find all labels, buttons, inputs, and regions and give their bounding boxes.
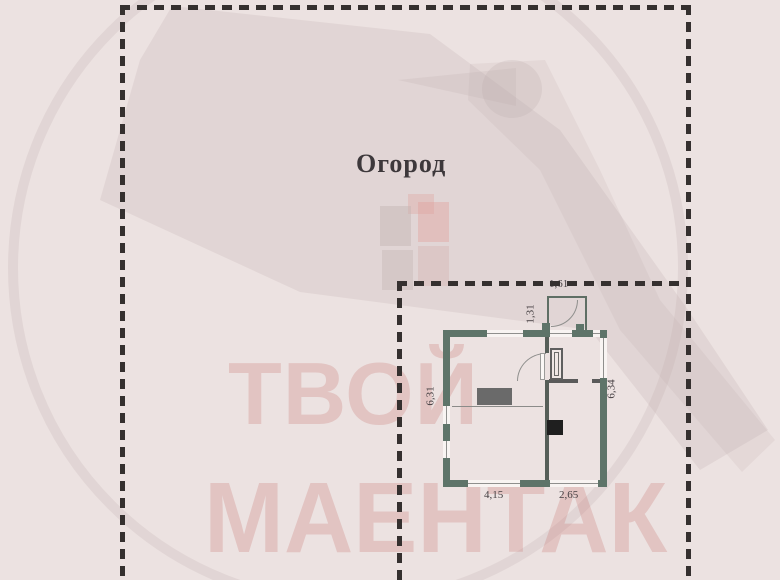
interior-door-leaf — [540, 353, 545, 380]
wall-segment — [443, 424, 450, 441]
wall-segment — [520, 480, 550, 487]
dim-left-side: 6,31 — [425, 386, 437, 405]
stove-black-box — [547, 420, 563, 435]
room-partition-line — [452, 406, 543, 407]
wall-segment — [598, 480, 607, 487]
inner-boundary-top — [397, 281, 686, 286]
interior-wall — [545, 337, 549, 353]
partition-wall — [592, 379, 600, 383]
inner-boundary-left — [397, 281, 402, 580]
wall-segment — [443, 480, 468, 487]
outer-boundary-right — [686, 5, 691, 580]
window-pane — [380, 206, 411, 246]
flue-inner-line — [554, 352, 559, 376]
window-watermark-icon — [380, 196, 452, 292]
wall-segment — [443, 330, 450, 406]
garden-area-label: Огород — [356, 149, 446, 179]
dim-bottom-left-room: 4,15 — [484, 489, 503, 501]
window-pane — [418, 202, 449, 242]
dim-bottom-right-room: 2,65 — [559, 489, 578, 501]
stove-shape — [477, 388, 512, 405]
dim-right-side: 6,34 — [606, 379, 618, 398]
dim-porch-depth: 1,31 — [525, 304, 537, 323]
watermark-text-line1: ТВОЙ — [228, 350, 479, 438]
site-plan-canvas: ТВОЙ МАЕНТАК Огород — [0, 0, 780, 580]
wall-segment — [600, 330, 607, 338]
wall-segment — [523, 330, 550, 337]
outer-boundary-left — [120, 5, 125, 580]
wall-segment — [572, 330, 593, 337]
outer-boundary-top — [120, 5, 691, 10]
window-pane — [418, 246, 449, 286]
